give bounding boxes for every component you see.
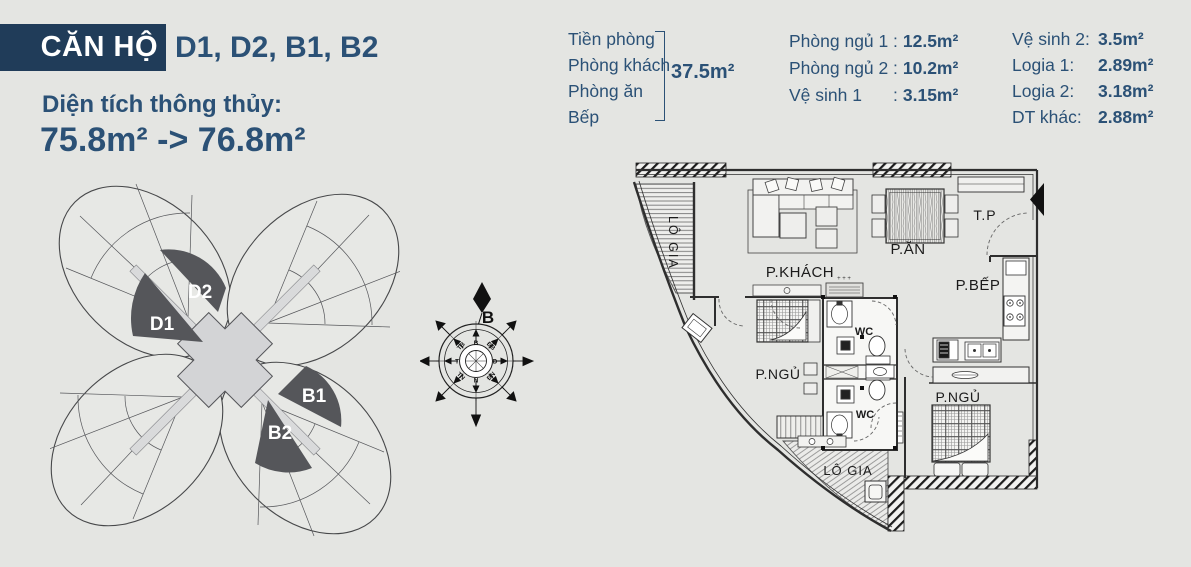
- area-column-2: Phòng ngủ 1:12.5m² Phòng ngủ 2:10.2m² Vệ…: [789, 28, 958, 109]
- dir-label-e: Đ: [493, 359, 498, 366]
- net-area-range: 75.8m² -> 76.8m²: [40, 121, 306, 160]
- chair: [945, 219, 958, 237]
- dir-label-n: B: [474, 340, 479, 347]
- area-row: Vệ sinh 2:3.5m²: [1012, 26, 1153, 52]
- room-label-living: P.KHÁCH: [766, 264, 834, 281]
- pillow: [962, 463, 988, 476]
- side-table: [816, 207, 837, 226]
- wc-counter: [866, 365, 894, 378]
- net-area-title: Diện tích thông thủy:: [42, 91, 282, 119]
- toilet-bowl: [869, 380, 885, 400]
- area-row: Phòng ngủ 2:10.2m²: [789, 55, 958, 82]
- floor-plan-drawing: + + +: [620, 150, 1060, 560]
- tap: [837, 301, 842, 305]
- room-label-wc2: WC: [856, 409, 874, 421]
- side-table: [804, 383, 817, 394]
- upper-cabinet: [1006, 261, 1026, 275]
- compass-rose: B B ĐB Đ ĐN N TN T TB: [420, 265, 540, 435]
- dining-furniture: [872, 189, 958, 243]
- room-label-wc1: WC: [855, 326, 873, 338]
- area-row: DT khác:2.88m²: [1012, 104, 1153, 130]
- chair: [872, 195, 885, 213]
- toilet-bowl: [869, 336, 885, 356]
- ac-unit: [682, 314, 712, 343]
- wardrobe: [777, 416, 823, 438]
- vent-marks: + + +: [837, 276, 851, 282]
- grouped-rooms-total: 37.5m²: [671, 61, 734, 84]
- area-column-3: Vệ sinh 2:3.5m² Logia 1:2.89m² Logia 2:3…: [1012, 26, 1153, 130]
- dir-label-w: T: [455, 359, 459, 366]
- room-label-foyer: T.P: [973, 207, 996, 223]
- area-row: Logia 2:3.18m²: [1012, 78, 1153, 104]
- room-label-bedroom2: P.NGỦ: [935, 388, 980, 405]
- unit-label-b2: B2: [268, 423, 292, 444]
- side-table: [804, 363, 817, 375]
- area-row: Logia 1:2.89m²: [1012, 52, 1153, 78]
- door-arc: [719, 299, 745, 326]
- area-row: Vệ sinh 1:3.15m²: [789, 82, 958, 109]
- dir-label-s: N: [474, 378, 479, 385]
- room-label-logia-top: LÔ GIA: [666, 216, 681, 270]
- chair: [945, 195, 958, 213]
- door-arc: [905, 349, 933, 377]
- area-row: Phòng ngủ 1:12.5m²: [789, 28, 958, 55]
- toilet-tank: [866, 356, 890, 364]
- room-label-kitchen: P.BẾP: [956, 277, 1001, 294]
- coffee-table: [780, 213, 806, 238]
- apartment-title-box: CĂN HỘ: [0, 24, 166, 71]
- washing-machine: [865, 481, 886, 502]
- north-label: B: [482, 308, 494, 327]
- sideboard: [933, 367, 1029, 383]
- room-label-dining: P.ĂN: [890, 241, 925, 258]
- unit-label-d1: D1: [150, 314, 175, 335]
- bedroom-2-furniture: [932, 405, 990, 476]
- unit-label-d2: D2: [188, 282, 212, 303]
- group-bracket: [655, 31, 665, 121]
- site-plan-diagram: D2 D1 B1 B2: [50, 178, 400, 538]
- apartment-units: D1, D2, B1, B2: [175, 24, 378, 71]
- sofa-chaise: [753, 195, 779, 237]
- room-label-bedroom1: P.NGỦ: [755, 365, 800, 382]
- bed-side: [808, 300, 820, 342]
- vanity: [798, 436, 846, 447]
- chair: [872, 219, 885, 237]
- side-table: [816, 229, 837, 248]
- room-label-logia-bottom: LÔ GIA: [823, 463, 872, 478]
- pillow: [934, 463, 960, 476]
- dining-table: [886, 189, 944, 243]
- apartment-title: CĂN HỘ: [41, 31, 158, 64]
- brochure-page: CĂN HỘ D1, D2, B1, B2 Diện tích thông th…: [0, 0, 1191, 567]
- unit-label-b1: B1: [302, 386, 327, 407]
- tv-cabinet: [753, 285, 821, 296]
